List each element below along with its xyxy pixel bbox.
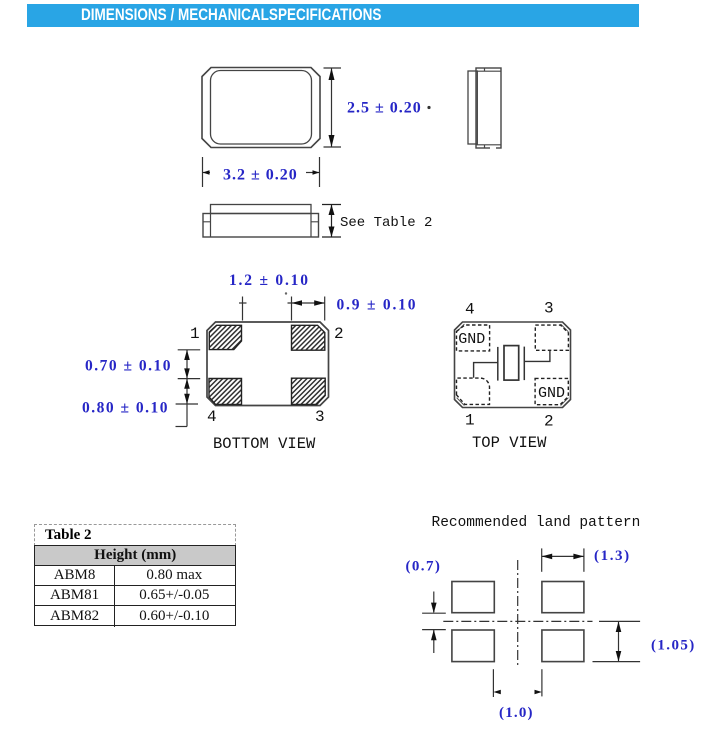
svg-text:Recommended land pattern: Recommended land pattern <box>432 515 641 531</box>
svg-text:3: 3 <box>544 300 554 318</box>
svg-text:GND: GND <box>538 385 565 402</box>
svg-text:1.2 ± 0.10: 1.2 ± 0.10 <box>229 272 310 289</box>
svg-text:TOP VIEW: TOP VIEW <box>472 434 547 452</box>
svg-text:GND: GND <box>458 331 485 348</box>
svg-text:(1.0): (1.0) <box>499 705 534 721</box>
svg-text:BOTTOM VIEW: BOTTOM VIEW <box>213 435 316 453</box>
svg-text:2: 2 <box>544 413 554 431</box>
svg-text:3: 3 <box>315 408 325 426</box>
svg-text:0.70 ± 0.10: 0.70 ± 0.10 <box>85 358 172 375</box>
svg-text:2.5 ± 0.20: 2.5 ± 0.20 <box>347 100 422 117</box>
svg-text:0.9 ± 0.10: 0.9 ± 0.10 <box>337 297 418 314</box>
svg-text:4: 4 <box>465 301 475 319</box>
svg-text:0.80 ± 0.10: 0.80 ± 0.10 <box>82 400 169 417</box>
svg-text:1: 1 <box>190 325 200 343</box>
svg-text:2: 2 <box>334 325 344 343</box>
svg-text:(0.7): (0.7) <box>406 559 442 575</box>
svg-text:(1.3): (1.3) <box>594 548 631 564</box>
svg-text:See Table 2: See Table 2 <box>340 215 432 231</box>
svg-text:1: 1 <box>465 412 475 430</box>
svg-text:3.2 ± 0.20: 3.2 ± 0.20 <box>223 167 298 184</box>
svg-text:(1.05): (1.05) <box>651 638 696 654</box>
svg-text:4: 4 <box>207 408 217 426</box>
